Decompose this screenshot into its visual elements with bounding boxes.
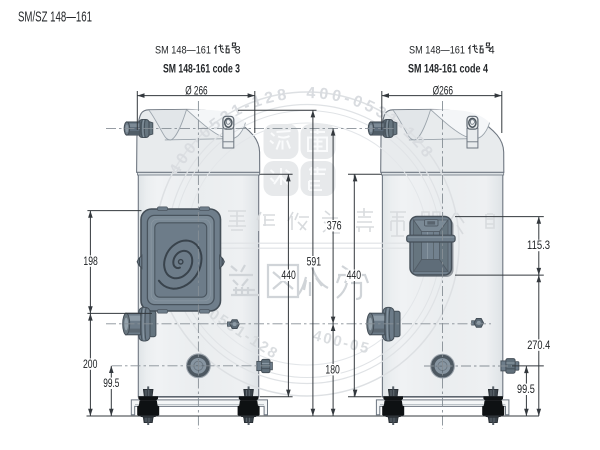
svg-text:99.5: 99.5 — [103, 376, 119, 390]
svg-text:SM 148—161: SM 148—161 — [155, 44, 211, 56]
svg-text:Ø266: Ø266 — [433, 84, 454, 98]
svg-text:591: 591 — [307, 254, 322, 268]
svg-text:Ø 266: Ø 266 — [185, 83, 208, 97]
svg-text:180: 180 — [325, 362, 340, 376]
svg-text:270.4: 270.4 — [527, 338, 550, 352]
svg-text:198: 198 — [83, 254, 98, 268]
svg-text:4: 4 — [489, 44, 495, 56]
svg-text:SM/SZ 148—161: SM/SZ 148—161 — [18, 9, 92, 25]
svg-text:SM 148—161: SM 148—161 — [409, 44, 465, 56]
svg-text:200: 200 — [83, 357, 98, 371]
svg-text:115.3: 115.3 — [527, 238, 550, 252]
svg-text:SM 148-161 code 3: SM 148-161 code 3 — [163, 61, 240, 75]
svg-text:99.5: 99.5 — [517, 382, 535, 396]
svg-text:376: 376 — [327, 218, 342, 232]
svg-text:440: 440 — [281, 268, 296, 282]
svg-text:3: 3 — [235, 44, 241, 56]
svg-text:SM 148-161 code 4: SM 148-161 code 4 — [408, 61, 488, 75]
svg-text:440: 440 — [347, 268, 362, 282]
